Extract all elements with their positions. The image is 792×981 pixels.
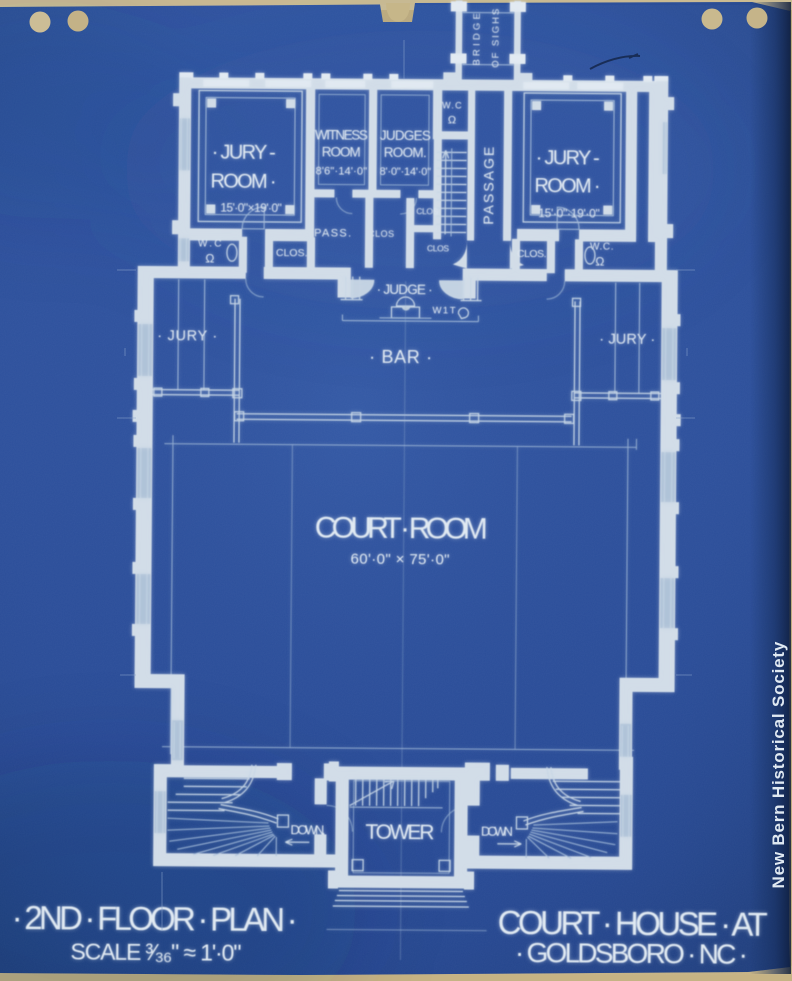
svg-text:New Bern Historical Society: New Bern Historical Society bbox=[769, 641, 788, 888]
